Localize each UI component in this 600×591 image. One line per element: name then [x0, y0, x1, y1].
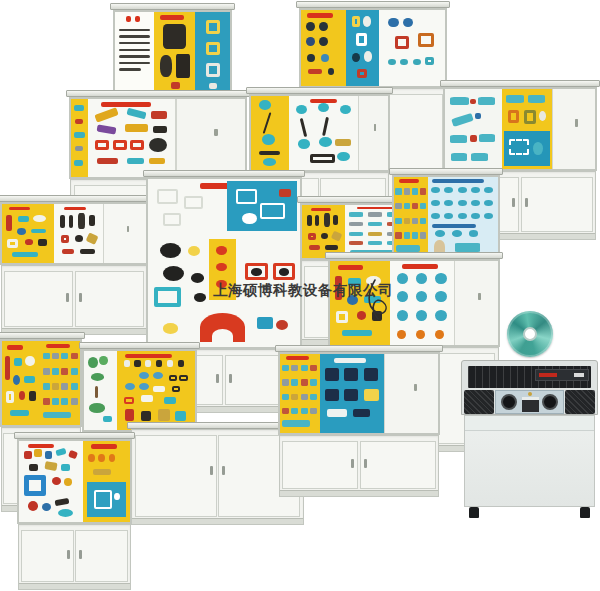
display-panel-green-board [84, 351, 117, 430]
part-shape [212, 329, 233, 342]
part-shape [71, 353, 78, 360]
console-red-display [539, 373, 557, 377]
display-panel-door [175, 99, 245, 177]
part-shape [163, 24, 186, 49]
part-shape [455, 243, 480, 251]
display-panel-mixed [2, 204, 54, 263]
part-shape [469, 230, 479, 236]
door-handle [512, 198, 515, 207]
part-shape [28, 501, 38, 511]
part-shape [88, 357, 98, 368]
part-shape [55, 498, 70, 507]
part-shape [60, 215, 65, 228]
part-shape [42, 503, 51, 511]
part-shape [13, 375, 20, 385]
cabinet-lid [246, 87, 393, 94]
part-shape [306, 22, 315, 31]
part-shape [52, 383, 59, 390]
sliding-door-left [4, 271, 73, 327]
part-shape [191, 273, 205, 283]
display-case [443, 87, 597, 171]
door-handle [222, 466, 225, 475]
sliding-door-left [135, 435, 217, 517]
part-shape [127, 226, 130, 231]
part-shape [308, 69, 321, 74]
console-left-speaker [464, 390, 494, 414]
part-shape [151, 111, 167, 119]
cabinet-lid [66, 90, 250, 97]
part-shape [262, 134, 275, 144]
cabinet-lid [440, 80, 600, 87]
part-shape [299, 118, 307, 137]
console-center-module [522, 397, 539, 412]
part-shape [282, 379, 289, 385]
part-shape [414, 384, 417, 391]
part-shape [58, 509, 73, 517]
part-shape [251, 268, 262, 276]
display-case [146, 177, 302, 349]
part-shape [61, 464, 70, 471]
part-shape [431, 200, 440, 206]
part-shape [125, 124, 148, 132]
part-shape [291, 408, 298, 414]
part-shape [435, 330, 444, 339]
part-shape [214, 129, 218, 136]
part-shape [127, 158, 144, 163]
sliding-door-right [360, 441, 436, 489]
part-shape [6, 391, 14, 403]
part-shape [103, 204, 104, 263]
part-shape [333, 215, 338, 226]
part-shape [310, 365, 317, 371]
part-shape [412, 188, 418, 194]
part-shape [478, 293, 481, 301]
part-shape [169, 375, 178, 381]
part-shape [259, 100, 271, 110]
part-shape [114, 493, 120, 500]
display-case [0, 202, 148, 265]
door-handle [525, 198, 528, 207]
part-shape [484, 187, 493, 193]
part-shape [45, 451, 53, 459]
part-shape [282, 394, 289, 400]
display-panel-door [103, 204, 146, 263]
part-shape [349, 222, 364, 226]
display-panel-door [454, 261, 498, 345]
display-case [0, 339, 82, 427]
part-shape [163, 266, 184, 281]
part-shape [291, 379, 298, 385]
display-case [392, 175, 500, 260]
display-panel-belts-w [289, 96, 358, 170]
part-shape [29, 391, 35, 401]
part-shape [310, 379, 317, 385]
part-shape [435, 310, 446, 321]
part-shape [388, 18, 399, 28]
part-shape [17, 228, 26, 235]
display-case [278, 352, 440, 435]
part-shape [98, 454, 105, 462]
part-shape [330, 230, 341, 241]
part-shape [301, 379, 308, 385]
part-shape [307, 54, 315, 62]
part-shape [358, 96, 359, 170]
part-shape [263, 158, 276, 165]
part-shape [74, 160, 83, 166]
display-panel-belts-y [251, 96, 289, 170]
part-shape [78, 213, 85, 228]
display-panel-fastener-rows [428, 177, 498, 258]
part-shape [52, 353, 59, 360]
part-shape [184, 196, 202, 209]
part-shape [395, 218, 401, 224]
part-shape [19, 391, 25, 399]
part-shape [325, 389, 339, 402]
part-shape [154, 287, 181, 307]
part-shape [336, 311, 348, 323]
cabinet-lid [79, 342, 200, 349]
part-shape [328, 68, 334, 75]
part-shape [484, 213, 493, 219]
part-shape [404, 232, 410, 238]
part-shape [145, 360, 151, 366]
part-shape [126, 108, 146, 120]
panel-title-bar [160, 15, 184, 20]
door-handle [364, 459, 367, 468]
display-panel-mixed [2, 341, 41, 425]
sliding-door-right [75, 271, 144, 327]
part-shape [412, 232, 418, 238]
display-panel-gears-blue [502, 89, 552, 169]
part-shape [444, 200, 453, 206]
part-shape [163, 323, 178, 333]
part-shape [89, 215, 95, 227]
part-shape [471, 187, 480, 193]
part-shape [444, 187, 453, 193]
display-panel-dials [148, 179, 300, 347]
panel-title-bar [9, 207, 30, 211]
part-shape [307, 215, 311, 227]
part-shape [318, 103, 329, 112]
part-shape [432, 224, 475, 228]
part-shape [344, 389, 358, 402]
door-handle [216, 374, 219, 383]
part-shape [64, 478, 72, 485]
part-shape [321, 233, 328, 239]
cabinet-magnetics [17, 432, 132, 590]
part-shape [325, 245, 338, 249]
part-shape [71, 398, 78, 405]
part-shape [374, 124, 376, 131]
console-tape-deck [535, 369, 589, 381]
cabinet-lid [275, 345, 443, 352]
part-shape [276, 320, 288, 330]
part-shape [74, 105, 84, 111]
display-case [299, 8, 447, 88]
part-shape [119, 55, 150, 57]
panel-title-bar [46, 344, 69, 348]
panel-title-bar [64, 207, 87, 211]
part-shape [282, 365, 289, 371]
part-shape [24, 451, 32, 459]
part-shape [470, 99, 476, 105]
display-panel-circle-board [346, 10, 379, 86]
part-shape [43, 398, 50, 405]
part-shape [357, 69, 367, 78]
part-shape [364, 51, 373, 62]
part-shape [349, 241, 364, 245]
part-shape [179, 375, 188, 381]
part-shape [175, 411, 186, 420]
part-shape [388, 59, 396, 66]
door-handle [79, 550, 82, 559]
display-panel-machines [88, 99, 175, 177]
console-indicator-dot [528, 392, 532, 396]
display-case [328, 259, 500, 347]
part-shape [62, 249, 75, 254]
part-shape [71, 368, 78, 375]
part-shape [552, 89, 553, 169]
display-panel-ring-board [379, 10, 445, 86]
part-shape [420, 232, 426, 238]
panel-title-bar [399, 179, 420, 183]
part-shape [80, 249, 95, 254]
part-shape [395, 36, 410, 49]
part-shape [139, 372, 149, 379]
part-shape [356, 33, 368, 47]
part-shape [416, 273, 427, 284]
part-shape [416, 330, 425, 339]
part-shape [24, 376, 35, 383]
part-shape [397, 330, 406, 339]
part-shape [163, 213, 181, 226]
part-shape [206, 63, 220, 76]
panel-title-bar [286, 356, 310, 360]
part-shape [458, 200, 467, 206]
part-shape [52, 398, 59, 405]
part-shape [321, 54, 329, 62]
part-shape [325, 368, 339, 381]
display-case [82, 349, 197, 432]
part-shape [296, 105, 307, 114]
part-shape [364, 368, 378, 381]
part-shape [451, 113, 473, 127]
part-shape [75, 235, 83, 242]
display-panel-dark-circles [301, 10, 346, 86]
part-shape [6, 215, 12, 232]
part-shape [334, 358, 366, 363]
part-shape [24, 475, 46, 496]
part-shape [141, 395, 153, 401]
cabinet-lid [0, 332, 85, 339]
part-shape [134, 360, 140, 366]
cd-hole [523, 327, 537, 341]
cabinet-base [279, 435, 439, 497]
part-shape [435, 230, 445, 236]
part-shape [209, 83, 217, 89]
part-shape [352, 53, 360, 62]
part-shape [71, 383, 78, 390]
part-shape [404, 188, 410, 194]
part-shape [404, 218, 410, 224]
cabinet-lid [325, 252, 503, 259]
console-control-panel [495, 390, 564, 414]
part-shape [43, 383, 50, 390]
display-panel-teal-strip [71, 99, 88, 177]
part-shape [33, 215, 45, 222]
part-shape [68, 450, 78, 459]
part-shape [91, 373, 104, 381]
part-shape [259, 151, 280, 155]
panel-title-bar [307, 13, 333, 18]
part-shape [61, 368, 68, 375]
watermark-swoosh-icon [366, 278, 402, 326]
display-panel-door [384, 354, 438, 433]
control-console [461, 360, 598, 518]
display-panel-lab-board [117, 351, 195, 430]
part-shape [404, 203, 410, 209]
door-handle [67, 550, 70, 559]
part-shape [349, 212, 364, 216]
sliding-door-right [521, 177, 593, 232]
part-shape [435, 273, 446, 284]
part-shape [319, 137, 331, 147]
part-shape [75, 146, 83, 151]
part-shape [176, 54, 190, 79]
cabinet-base [1, 265, 147, 335]
panel-title-bar [310, 99, 337, 103]
part-shape [384, 354, 385, 433]
part-shape [113, 140, 127, 151]
part-shape [88, 454, 95, 462]
display-panel-orange-dots [83, 441, 130, 522]
part-shape [141, 411, 152, 420]
part-shape [119, 29, 150, 31]
part-shape [236, 189, 257, 204]
part-shape [470, 135, 477, 141]
part-shape [306, 37, 315, 46]
part-shape [95, 108, 119, 123]
part-shape [458, 213, 467, 219]
part-shape [61, 383, 68, 390]
part-shape [368, 232, 383, 236]
part-shape [319, 37, 328, 46]
display-case [249, 94, 390, 172]
part-shape [25, 239, 33, 245]
console-right-dial [542, 394, 558, 410]
part-shape [416, 291, 427, 302]
part-shape [368, 212, 383, 216]
part-shape [153, 372, 163, 379]
part-shape [119, 35, 150, 37]
cabinet-plinth [19, 583, 130, 589]
part-shape [395, 232, 401, 238]
cabinet-lid [0, 195, 151, 202]
part-shape [471, 213, 480, 219]
part-shape [109, 454, 116, 462]
part-shape [125, 409, 134, 420]
part-shape [69, 215, 74, 228]
cabinet-plinth [280, 490, 438, 496]
part-shape [324, 213, 330, 227]
part-shape [99, 356, 108, 365]
part-shape [508, 110, 519, 123]
display-panel-dark-board [54, 204, 103, 263]
part-shape [160, 243, 181, 258]
part-shape [450, 97, 469, 105]
part-shape [103, 416, 112, 422]
part-shape [506, 95, 524, 102]
console-desk-body [464, 415, 595, 507]
part-shape [74, 132, 84, 138]
part-shape [337, 152, 349, 161]
part-shape [149, 158, 165, 163]
part-shape [257, 317, 272, 329]
panel-title-bar [402, 264, 438, 268]
part-shape [119, 42, 150, 44]
part-shape [342, 330, 372, 336]
part-shape [454, 261, 455, 345]
part-shape [25, 356, 34, 366]
part-shape [158, 409, 170, 420]
part-shape [396, 245, 420, 251]
part-shape [528, 95, 545, 102]
part-shape [14, 358, 23, 366]
part-shape [164, 397, 176, 404]
part-shape [403, 18, 414, 28]
part-shape [471, 153, 488, 161]
display-panel-door [552, 89, 596, 169]
console-readout [574, 373, 584, 377]
part-shape [56, 448, 68, 457]
cabinet-plinth [132, 518, 303, 524]
part-shape [149, 138, 166, 152]
display-panel-gear-column [195, 12, 230, 95]
console-desk-band [465, 416, 594, 431]
panel-title-bar [338, 265, 362, 270]
part-shape [315, 215, 319, 227]
display-case [113, 10, 232, 97]
part-shape [363, 16, 372, 27]
door-handle [229, 374, 232, 383]
part-shape [524, 110, 536, 124]
display-panel-dark-board [302, 205, 345, 258]
part-shape [7, 239, 17, 247]
part-shape [352, 16, 361, 27]
display-panel-blue-slots [320, 354, 385, 433]
part-shape [412, 203, 418, 209]
display-panel-sewing-dark [154, 12, 195, 95]
sliding-door-left [282, 441, 358, 489]
part-shape [282, 408, 289, 414]
part-shape [135, 16, 140, 22]
cabinet-lid [389, 168, 503, 175]
product-collage-image: 上海硕博科教设备有限公司 [0, 0, 600, 591]
part-shape [93, 469, 112, 475]
part-shape [478, 97, 495, 105]
part-shape [395, 188, 401, 194]
cabinet-lid [110, 3, 235, 10]
part-shape [310, 394, 317, 400]
display-panel-teal-rows [280, 354, 320, 433]
part-shape [291, 394, 298, 400]
part-shape [52, 477, 61, 485]
part-shape [368, 222, 383, 226]
part-shape [86, 232, 99, 245]
part-shape [301, 365, 308, 371]
part-shape [61, 353, 68, 360]
part-shape [171, 82, 180, 89]
